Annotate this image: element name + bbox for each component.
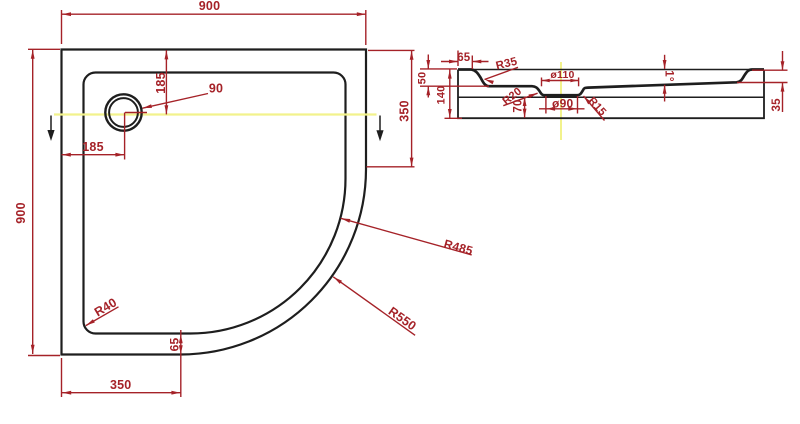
svg-text:65: 65 — [167, 338, 181, 352]
svg-text:185: 185 — [154, 72, 168, 93]
svg-text:35: 35 — [771, 98, 783, 112]
svg-text:140: 140 — [436, 86, 448, 105]
svg-text:ø110: ø110 — [550, 69, 574, 81]
svg-text:900: 900 — [14, 202, 28, 223]
svg-text:65: 65 — [457, 52, 471, 64]
svg-text:50: 50 — [417, 72, 429, 85]
svg-text:1°: 1° — [663, 70, 675, 82]
svg-text:900: 900 — [199, 0, 220, 13]
svg-text:ø90: ø90 — [552, 97, 573, 111]
svg-text:350: 350 — [110, 378, 131, 392]
svg-text:350: 350 — [397, 100, 411, 121]
svg-text:70: 70 — [512, 99, 524, 112]
svg-text:90: 90 — [209, 82, 223, 96]
svg-text:185: 185 — [82, 140, 103, 154]
